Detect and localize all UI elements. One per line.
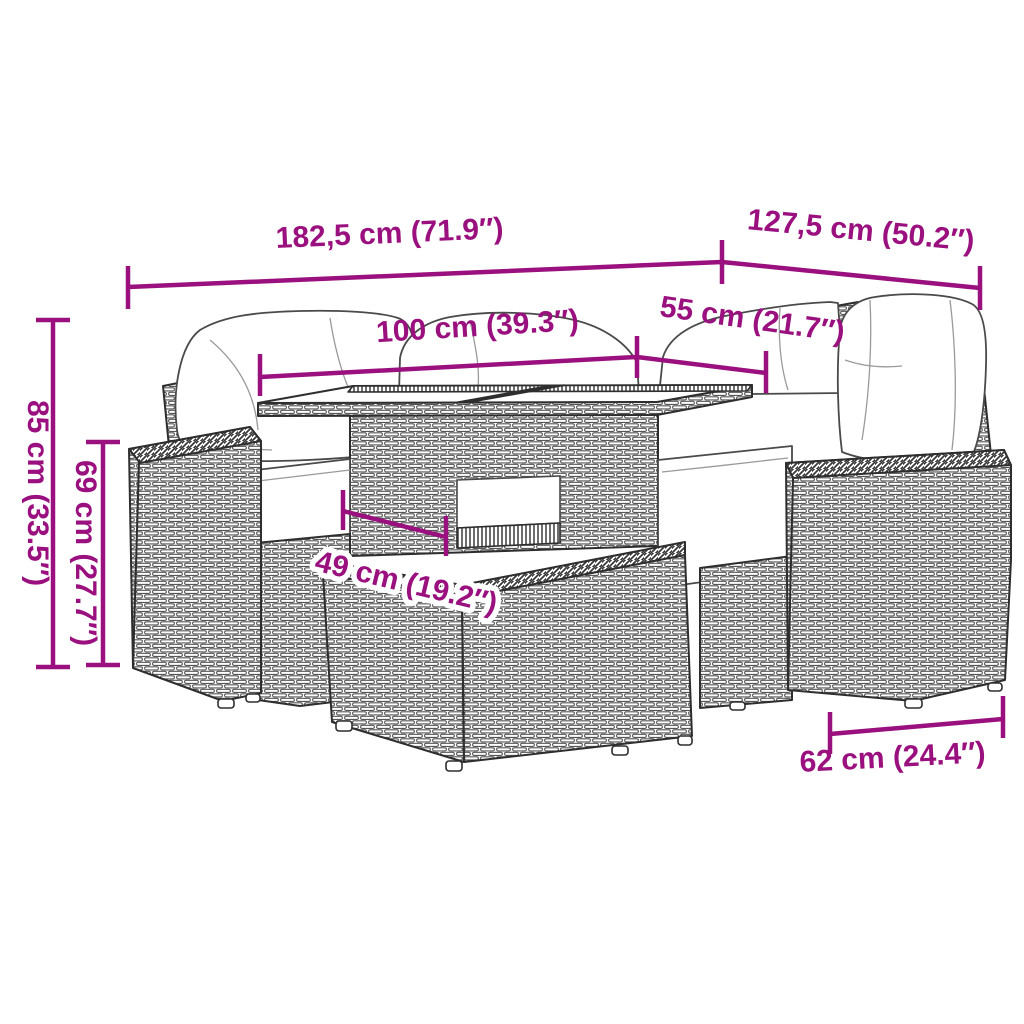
diagram-canvas: 182,5 cm (71.9″) 127,5 cm (50.2″) 100 cm… xyxy=(0,0,1024,1024)
dim-line xyxy=(128,240,722,309)
dim-label-armrest-height: 69 cm (27.7″) xyxy=(69,460,102,646)
left-sofa-armrest xyxy=(129,427,261,708)
right-sofa-back-cushion xyxy=(838,294,986,463)
dim-armrest-height: 69 cm (27.7″) xyxy=(69,442,120,665)
dim-overall-width-left: 182,5 cm (71.9″) xyxy=(128,212,722,309)
table-base-opening xyxy=(457,476,560,528)
table-shelf xyxy=(457,523,560,548)
dim-label-overall-height: 85 cm (33.5″) xyxy=(21,400,54,586)
dim-overall-width-right: 127,5 cm (50.2″) xyxy=(722,203,980,310)
dim-label-overall-width-left: 182,5 cm (71.9″) xyxy=(275,212,504,255)
dim-overall-height: 85 cm (33.5″) xyxy=(21,320,70,667)
product-dimension-image: 182,5 cm (71.9″) 127,5 cm (50.2″) 100 cm… xyxy=(0,0,1024,1024)
dim-ottoman-width: 62 cm (24.4″) xyxy=(799,696,1003,779)
right-sofa-armrest xyxy=(786,450,1011,708)
dim-label-overall-width-right: 127,5 cm (50.2″) xyxy=(746,203,976,258)
dim-label-ottoman-width: 62 cm (24.4″) xyxy=(799,736,987,779)
